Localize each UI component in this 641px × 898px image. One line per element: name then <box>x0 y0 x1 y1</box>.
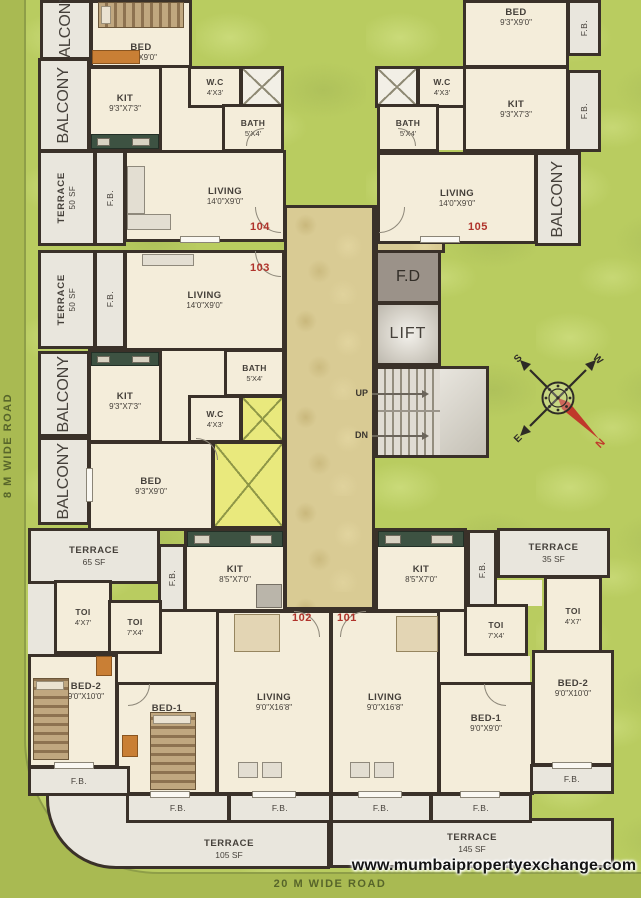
unit-101-fb: F.B. <box>467 530 497 610</box>
stair-treads <box>378 369 440 455</box>
armchair <box>374 762 394 778</box>
terrace-bottom-left-label: TERRACE <box>169 838 289 850</box>
floor-plan: TERRACE 105 SF TERRACE 145 SF BALCONY BE… <box>0 0 641 898</box>
balcony-label: BALCONY <box>54 356 74 432</box>
fb-label: F.B. <box>105 190 116 206</box>
unit-101-toi-small: TOI 7'X4' <box>464 604 528 656</box>
compass-north-label: N <box>594 437 608 450</box>
open-duct <box>240 395 285 443</box>
armchair <box>262 762 282 778</box>
unit-104-number: 104 <box>250 221 270 233</box>
sofa-furniture <box>142 254 194 266</box>
kitchen-counter <box>91 352 159 366</box>
unit-101-bed1: BED-1 9'0"X9'0" <box>438 682 534 795</box>
unit-105-fb-top: F.B. <box>567 0 601 56</box>
unit-102-number: 102 <box>292 612 312 624</box>
unit-104-balcony-left: BALCONY <box>38 58 90 152</box>
unit-104-terrace: TERRACE 50 SF <box>38 150 96 246</box>
fire-duct: F.D <box>375 250 441 304</box>
unit-103-balcony-upper: BALCONY <box>38 351 90 437</box>
fb-strip: F.B. <box>28 766 130 796</box>
compass-rose: S W E N <box>506 346 610 450</box>
open-duct-large <box>212 441 285 529</box>
kitchen-counter <box>91 134 159 149</box>
balcony-label: BALCONY <box>54 67 74 143</box>
dining-table <box>234 614 280 652</box>
fb-label: F.B. <box>477 562 488 578</box>
unit-101-number: 101 <box>337 612 357 624</box>
kitchen-counter <box>187 531 283 547</box>
unit-103-bath: BATH 5'X4' <box>224 349 285 397</box>
unit-101-bed2: BED-2 9'0"X10'0" <box>532 650 614 766</box>
stairs-up-label: UP <box>334 388 368 398</box>
unit-103-terrace: TERRACE 50 SF <box>38 250 96 349</box>
balcony-label: BALCONY <box>54 443 74 519</box>
unit-105-kitchen: KIT 9'3"X7'3" <box>463 66 569 152</box>
armchair <box>350 762 370 778</box>
unit-103-number: 103 <box>250 262 270 274</box>
unit-103-wc: W.C 4'X3' <box>188 395 242 443</box>
unit-105-living: LIVING 14'0"X9'0" <box>377 152 537 244</box>
stairs-down-label: DN <box>334 430 368 440</box>
terrace-bottom-right-label: TERRACE <box>447 832 497 844</box>
unit-102-terrace: TERRACE 65 SF <box>28 528 160 584</box>
balcony-label: BALCONY <box>548 161 568 237</box>
fridge <box>256 584 282 608</box>
kitchen-counter <box>378 531 464 547</box>
unit-101-toi-large: TOI 4'X7' <box>544 576 602 656</box>
staircase <box>375 366 489 458</box>
dining-table <box>396 616 438 652</box>
unit-102-fb: F.B. <box>158 544 186 612</box>
stair-landing <box>440 369 486 455</box>
duct-shaft <box>375 66 419 108</box>
unit-105-wc: W.C 4'X3' <box>417 66 467 108</box>
lift: LIFT <box>375 302 441 366</box>
unit-102-toi-large: TOI 4'X7' <box>54 580 112 654</box>
fb-label: F.B. <box>579 20 590 36</box>
road-bottom-label: 20 M WIDE ROAD <box>180 878 480 890</box>
bed-furniture <box>33 678 69 760</box>
unit-105-bed: BED 9'3"X9'0" <box>463 0 569 68</box>
unit-101-terrace: TERRACE 35 SF <box>497 528 610 578</box>
side-table <box>122 735 138 757</box>
unit-103-fb: F.B. <box>94 250 126 349</box>
fb-label: F.B. <box>579 103 590 119</box>
unit-105-balcony: BALCONY <box>535 152 581 246</box>
road-left-label: 8 M WIDE ROAD <box>2 350 22 540</box>
duct-shaft <box>240 66 284 108</box>
sofa-furniture <box>127 214 171 230</box>
fb-label: F.B. <box>105 291 116 307</box>
fb-label: F.B. <box>167 570 178 586</box>
watermark: www.mumbaipropertyexchange.com <box>348 857 640 875</box>
side-table <box>96 656 112 676</box>
unit-103-balcony-lower: BALCONY <box>38 437 90 525</box>
unit-104-balcony-top: BALCONY <box>40 0 92 60</box>
unit-104-wc: W.C 4'X3' <box>188 66 242 108</box>
armchair <box>238 762 258 778</box>
sofa-furniture <box>127 166 145 214</box>
corridor <box>284 205 375 610</box>
unit-104-fb: F.B. <box>94 150 126 246</box>
dresser-furniture <box>92 50 140 64</box>
unit-105-fb-right: F.B. <box>567 70 601 152</box>
unit-105-number: 105 <box>468 221 488 233</box>
unit-102-toi-small: TOI 7'X4' <box>108 600 162 654</box>
